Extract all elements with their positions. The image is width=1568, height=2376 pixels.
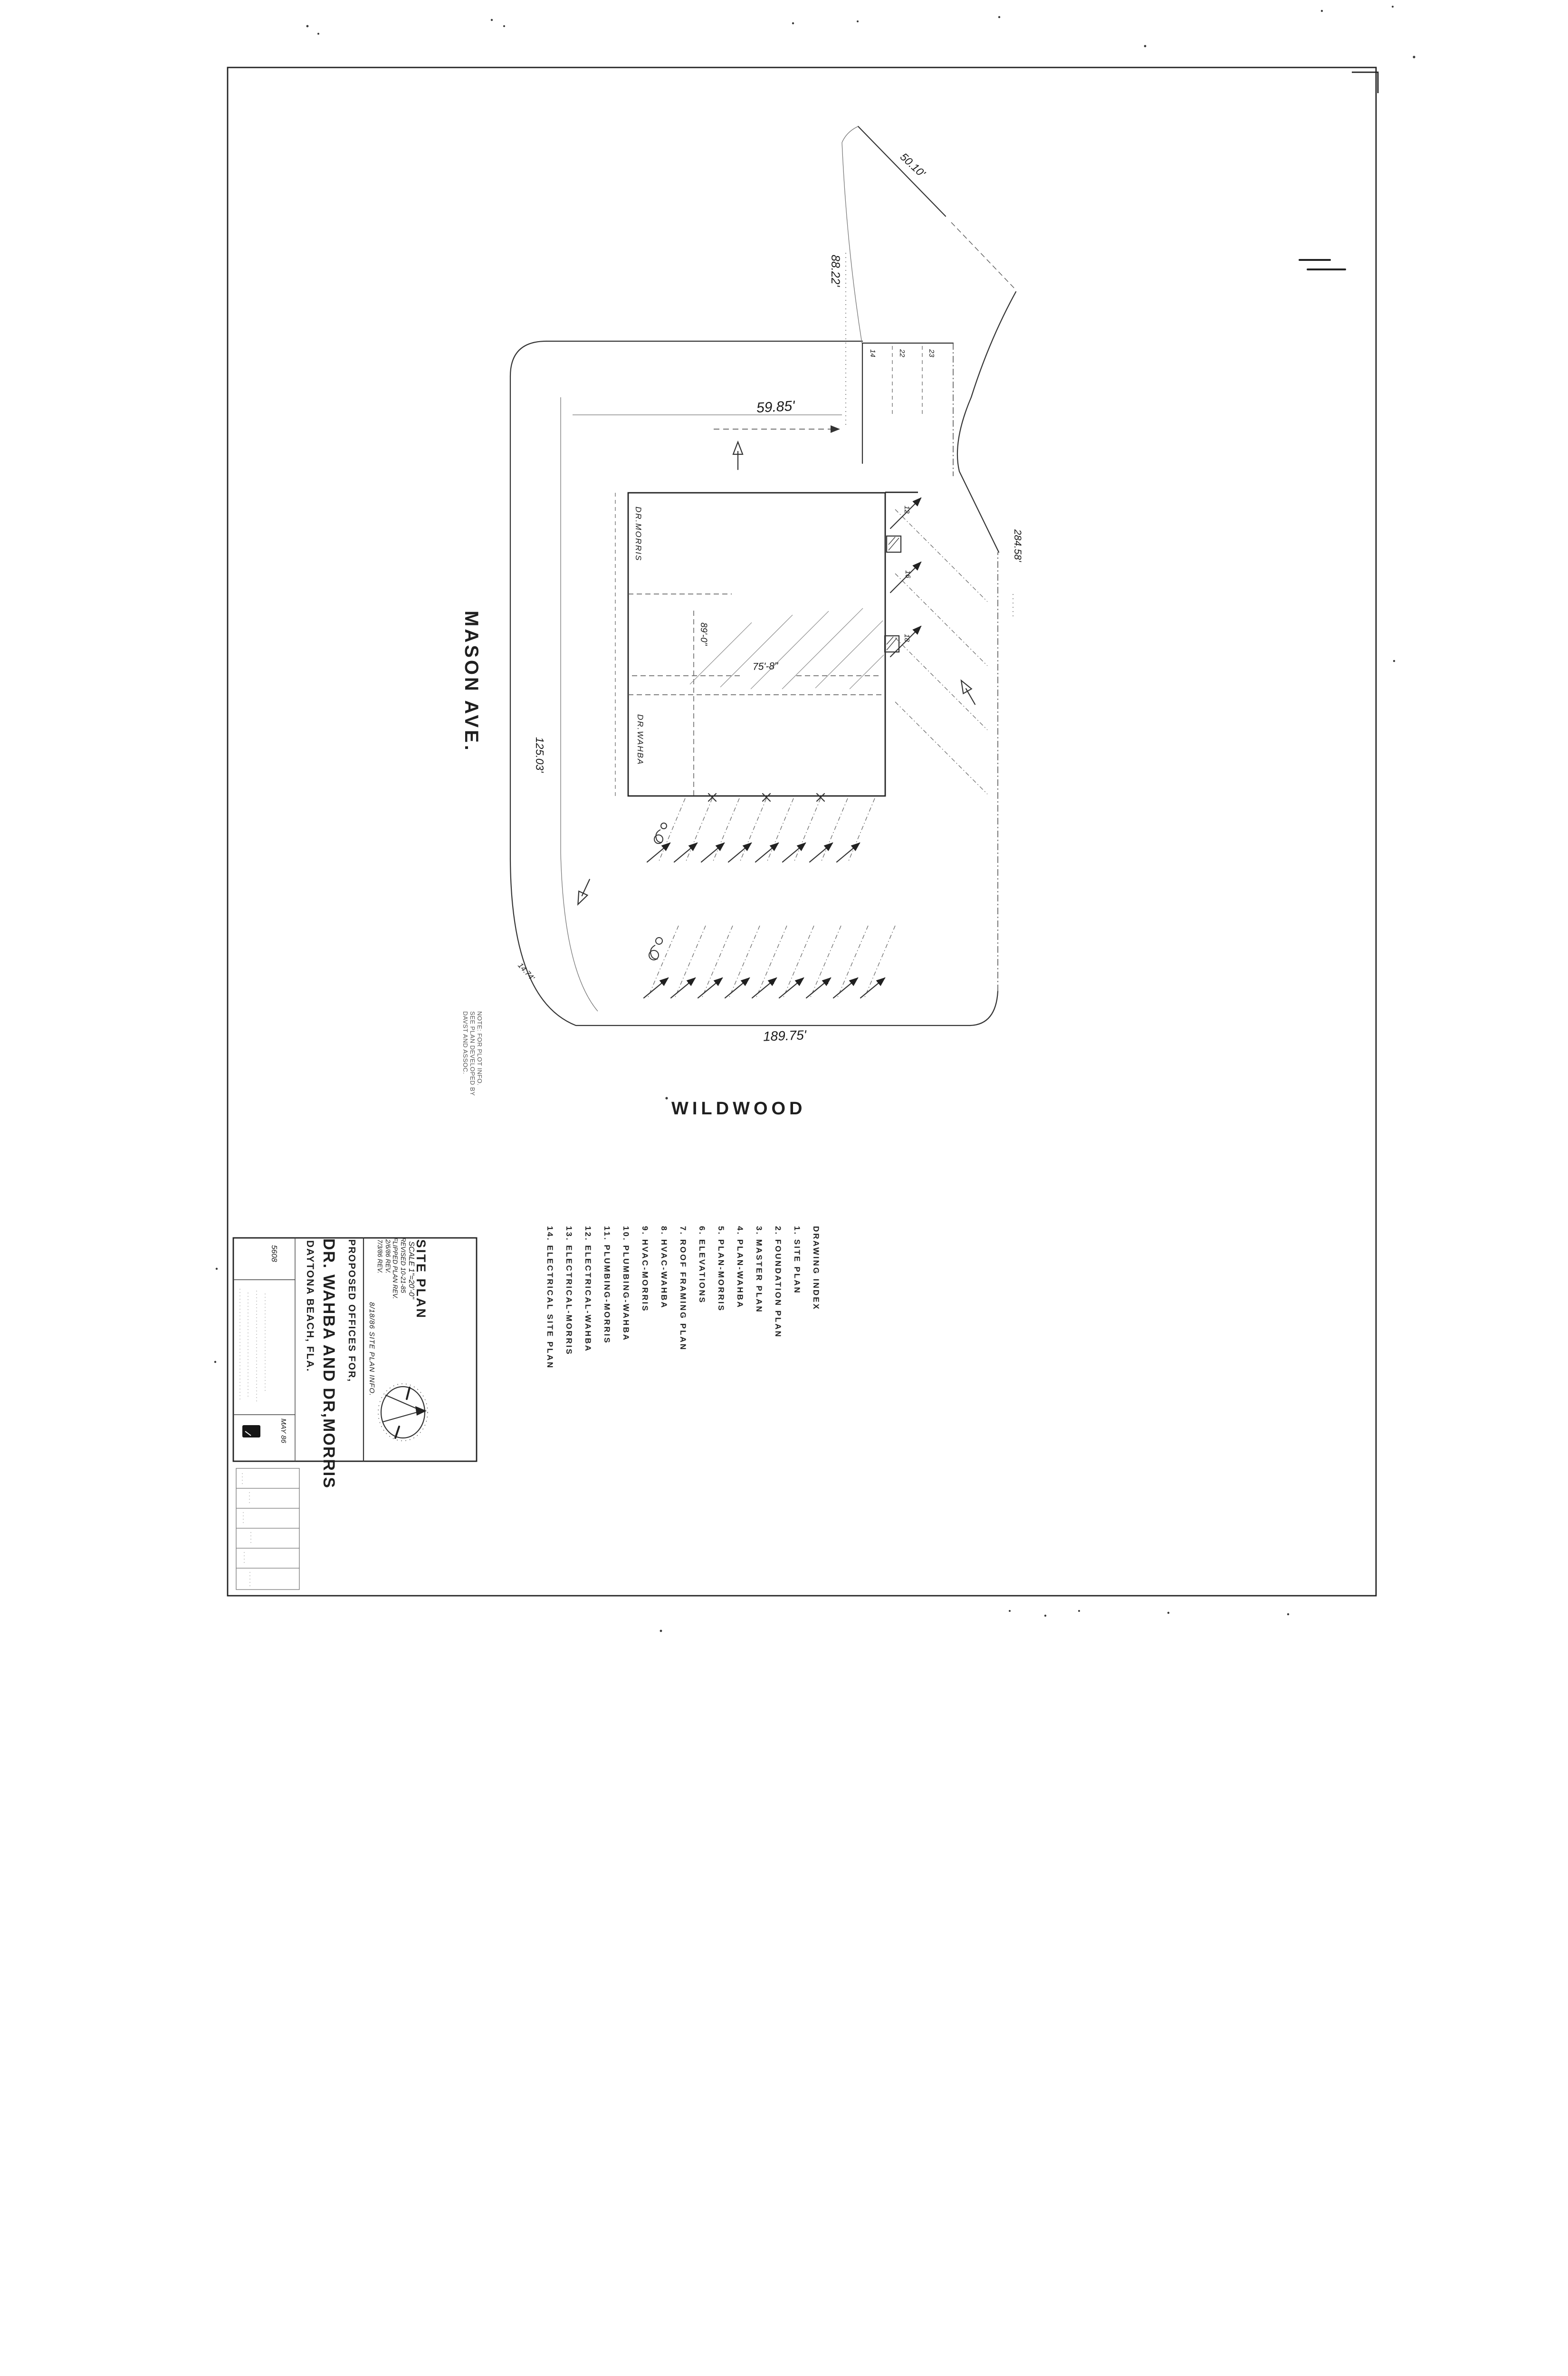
corner-mark [1352, 72, 1378, 93]
revision-table [236, 1468, 299, 1590]
info-note: 8/18/86 SITE PLAN INFO. [368, 1302, 375, 1396]
building-dim-depth: 89'-0" [699, 623, 708, 645]
drawing-index-item: 13. ELECTRICAL-MORRIS [565, 1226, 573, 1356]
stall-number: 5 [768, 980, 775, 984]
exit-arrow [574, 877, 594, 906]
stall-number: 14 [869, 349, 876, 357]
drawing-index-item: 3. MASTER PLAN [755, 1226, 763, 1313]
drawing-index-item: 12. ELECTRICAL-WAHBA [584, 1226, 592, 1352]
handicap-symbol [654, 823, 667, 843]
top-parking-strip [862, 343, 953, 476]
parking-row-upper [647, 794, 875, 862]
entry-arrow [733, 442, 743, 469]
building-label-lower-suite: DR.WAHBA [636, 714, 644, 765]
architect-logo [242, 1425, 260, 1437]
stall-number: 8 [849, 980, 856, 984]
stall-number: 3 [714, 980, 721, 984]
drawing-index-item: 6. ELEVATIONS [698, 1226, 706, 1304]
scanned-site-plan-sheet: { "streets": { "left_label": "MASON AVE.… [0, 0, 1568, 2376]
dim-top: 59.85' [756, 399, 795, 415]
stamp-number: 5608 [270, 1245, 277, 1262]
revision-note: 2/6/86 REV. [385, 1239, 392, 1274]
sheet-border [228, 67, 1376, 1596]
revision-note: FLIPPED PLAN REV. [392, 1237, 399, 1299]
drawing-index-item: 5. PLAN-MORRIS [717, 1226, 725, 1312]
drawing-index-item: 7. ROOF FRAMING PLAN [679, 1226, 687, 1351]
drawing-index-item: 8. HVAC-WAHBA [660, 1226, 668, 1309]
north-arrow-icon [378, 1384, 428, 1441]
building-hatch [690, 608, 884, 689]
project-line2: DR. WAHBA AND DR,MORRIS [321, 1238, 337, 1489]
stall-number: 12 [903, 506, 910, 514]
stall-number: 16 [904, 570, 911, 578]
stall-number: 22 [899, 349, 906, 357]
stall-number: 6 [795, 980, 802, 984]
sheet-title: SITE PLAN [414, 1239, 427, 1319]
stall-number: 18 [903, 634, 910, 642]
handicap-symbol [649, 938, 662, 960]
dim-bottom: 189.75' [763, 1028, 807, 1043]
drawing-index-title: DRAWING INDEX [812, 1226, 820, 1311]
building-label-upper-suite: DR.MORRIS [634, 507, 642, 561]
wheel-stops [885, 536, 901, 652]
drawing-index-item: 4. PLAN-WAHBA [736, 1226, 744, 1309]
parking-row-bottom [644, 926, 895, 998]
project-line1: PROPOSED OFFICES FOR, [347, 1239, 356, 1382]
stall-number: 23 [928, 349, 935, 357]
street-label-mason-ave: MASON AVE. [462, 611, 481, 753]
project-line3: DAYTONA BEACH, FLA. [305, 1240, 315, 1372]
dim-right: 284.58' [1013, 529, 1023, 562]
curb-lines [561, 397, 842, 1011]
plot-note-line1: NOTE: FOR PLOT INFO. [477, 1011, 483, 1085]
building-outline [615, 492, 918, 796]
revision-note: REVISED 10-21-85 [400, 1237, 407, 1293]
site-plan-linework [0, 0, 1568, 2376]
parking-right-row [890, 498, 987, 794]
drawing-index-item: 9. HVAC-MORRIS [641, 1226, 649, 1312]
entry-arrow [957, 678, 979, 707]
plot-note-line3: DAVST AND ASSOC. [462, 1011, 468, 1074]
stall-number: 2 [687, 980, 694, 984]
dim-left: 125.03' [534, 737, 545, 773]
scale-note: SCALE 1"=20'-0" [407, 1241, 415, 1299]
stall-number: 4 [741, 980, 748, 984]
stall-number: 1 [660, 980, 667, 984]
stamp-date: MAY 86 [280, 1418, 287, 1443]
drawing-index-item: 1. SITE PLAN [793, 1226, 801, 1294]
dim-drive-right: 88.22' [829, 255, 841, 287]
street-label-wildwood: WILDWOOD [671, 1100, 806, 1118]
drawing-index-item: 14. ELECTRICAL SITE PLAN [546, 1226, 554, 1369]
property-boundary [510, 126, 1016, 1025]
stall-number: 9 [876, 980, 883, 984]
drawing-index-item: 2. FOUNDATION PLAN [774, 1226, 782, 1338]
drawing-index-item: 11. PLUMBING-MORRIS [603, 1226, 611, 1344]
drawing-index-item: 10. PLUMBING-WAHBA [622, 1226, 630, 1341]
stall-number: 7 [822, 980, 829, 984]
building-dim-width: 75'-8" [753, 661, 778, 672]
plot-note-line2: SEE PLAN DEVELOPED BY [469, 1011, 476, 1096]
revision-note: 7/3/86 REV. [377, 1239, 383, 1274]
